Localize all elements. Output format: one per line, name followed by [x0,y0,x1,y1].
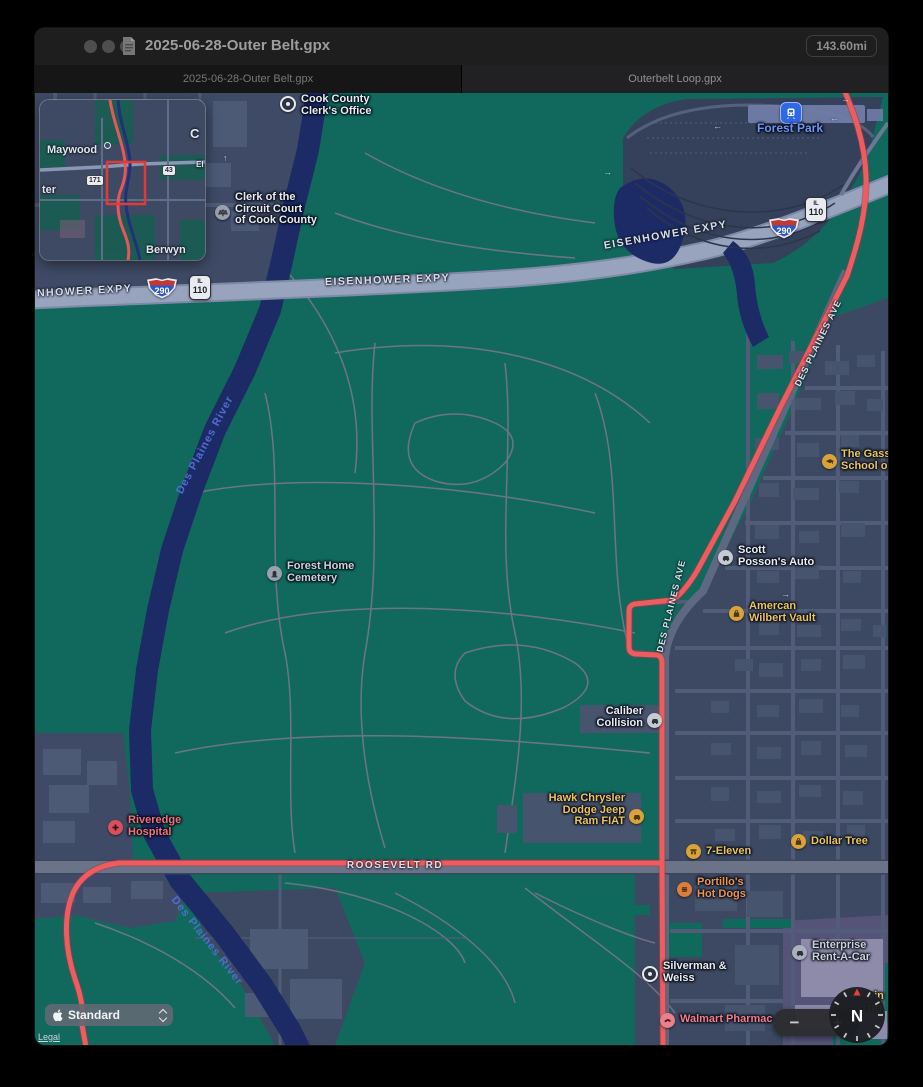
cemetery-poi-icon [267,566,282,581]
inset-label-maywood: Maywood [47,144,97,156]
title-bar: 2025-06-28-Outer Belt.gpx 143.60mi [35,28,888,65]
poi-gass-school[interactable]: The GassSchool o [841,449,888,472]
courthouse-poi-icon [215,205,230,220]
tab-outer-belt[interactable]: 2025-06-28-Outer Belt.gpx [35,65,462,93]
distance-badge: 143.60mi [806,35,877,57]
school-poi-icon [822,454,837,469]
inset-label-ter: ter [42,184,56,196]
poi-circuit-court[interactable]: Clerk of theCircuit Courtof Cook County [235,192,317,227]
map-view[interactable]: → ← ← → → ↑ NHOWER EXPY EISENHOWER EXPY … [35,93,888,1045]
poi-silverman-weiss[interactable]: Silverman &Weiss [663,961,727,984]
zoom-out-button[interactable]: − [773,1009,816,1036]
poi-riveredge-hospital[interactable]: RiveredgeHospital [128,815,181,838]
poi-dollar-tree[interactable]: Dollar Tree [811,836,868,848]
tab-bar: 2025-06-28-Outer Belt.gpx Outerbelt Loop… [35,65,888,93]
poi-walmart-pharmacy[interactable]: Walmart Pharmac [680,1014,773,1026]
inset-label-ei-partial: EI [196,160,204,169]
poi-seven-eleven[interactable]: 7-Eleven [706,846,751,858]
il-110-shield: IL110 [805,197,827,222]
one-way-arrow-icon: → [841,94,850,104]
poi-wilbert-vault[interactable]: AmercanWilbert Vault [749,601,816,624]
compass-control[interactable]: N [828,986,886,1044]
convenience-store-poi-icon [686,844,701,859]
map-type-selector[interactable]: Standard [45,1004,173,1026]
route-171-shield: 171 [86,175,104,186]
close-button[interactable] [84,40,97,53]
map-type-value: Standard [68,1008,120,1022]
poi-enterprise[interactable]: EnterpriseRent-A-Car [812,940,870,963]
il-110-shield: IL110 [189,275,211,300]
car-dealer-poi-icon [629,809,644,824]
poi-portillos[interactable]: Portillo'sHot Dogs [697,877,746,900]
inset-label-berwyn: Berwyn [146,244,186,256]
hospital-poi-icon [108,820,123,835]
minimize-button[interactable] [102,40,115,53]
poi-caliber-collision[interactable]: CaliberCollision [575,706,643,729]
shopping-poi-icon [791,834,806,849]
one-way-arrow-icon: → [603,167,612,177]
legal-link[interactable]: Legal [38,1032,60,1042]
interstate-290-shield: 290 [147,277,177,299]
route-43-shield: 43 [162,165,176,176]
app-window: 2025-06-28-Outer Belt.gpx 143.60mi 2025-… [35,28,888,1045]
compass-n-label: N [851,1007,863,1026]
one-way-arrow-icon: → [781,589,790,599]
auto-poi-icon [718,550,733,565]
restaurant-poi-icon [677,882,692,897]
shopping-poi-icon [729,606,744,621]
car-rental-poi-icon [792,945,807,960]
poi-cook-county-clerk[interactable]: Cook CountyClerk's Office [301,94,371,117]
poi-scott-posson[interactable]: ScottPosson's Auto [738,545,814,568]
one-way-arrow-icon: ↑ [223,153,228,163]
apple-logo-icon [52,1009,63,1022]
office-poi-icon [642,966,658,982]
one-way-arrow-icon: ← [713,121,722,131]
overview-minimap: Maywood ter Berwyn C EI 171 43 [40,100,205,260]
poi-forest-park-station[interactable]: Forest Park [735,123,845,135]
poi-hawk-chrysler[interactable]: Hawk ChryslerDodge JeepRam FIAT [515,793,625,828]
one-way-arrow-icon: ← [830,113,839,123]
window-title: 2025-06-28-Outer Belt.gpx [145,37,330,54]
government-poi-icon [280,96,296,112]
auto-poi-icon [647,713,662,728]
tab-outerbelt-loop[interactable]: Outerbelt Loop.gpx [462,65,888,93]
inset-label-chicago-partial: C [190,126,199,141]
interstate-290-shield: 290 [769,217,799,239]
chevron-up-down-icon [160,1010,166,1021]
document-icon [121,36,137,61]
pharmacy-poi-icon [660,1013,675,1028]
poi-forest-home-cemetery[interactable]: Forest HomeCemetery [287,561,354,584]
road-label-roosevelt: ROOSEVELT RD [330,860,460,871]
